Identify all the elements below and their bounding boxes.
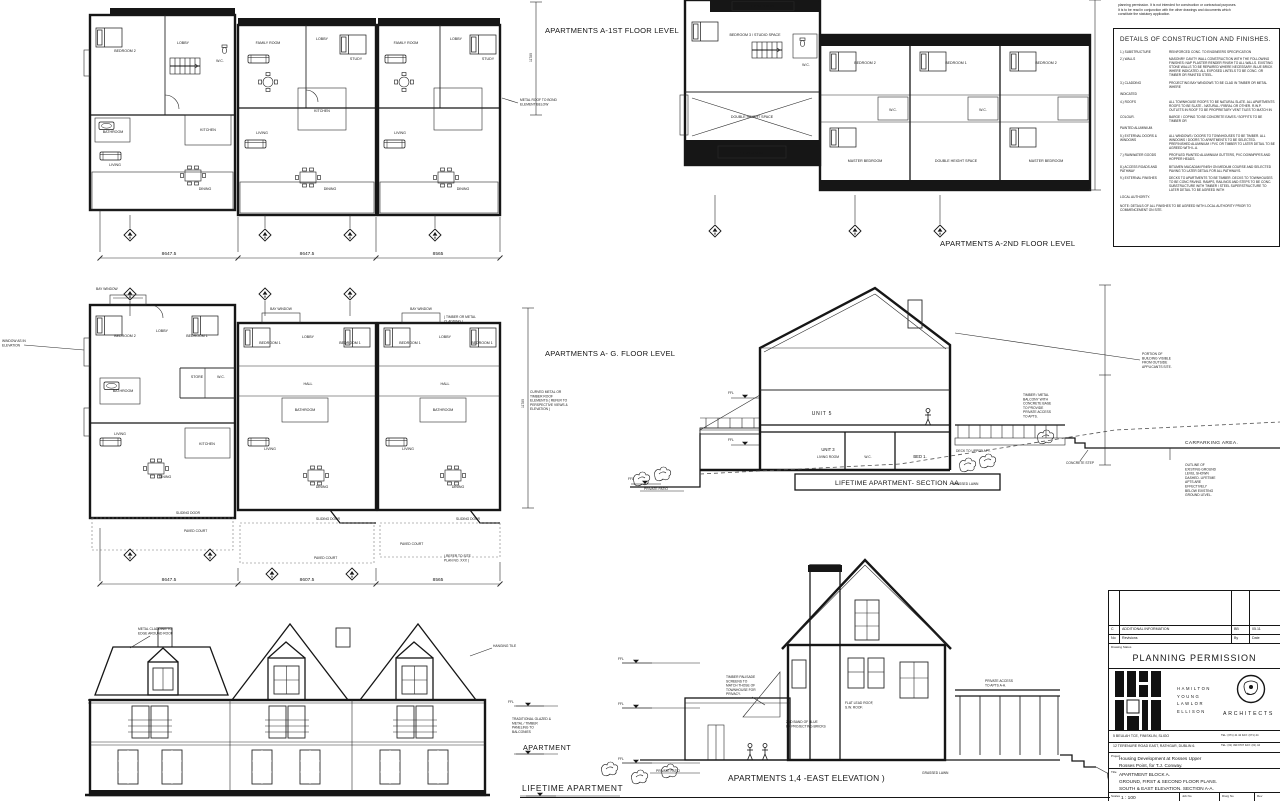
section-title: LIFETIME APARTMENT- SECTION AA <box>835 480 959 487</box>
room-label: DINING <box>159 475 172 479</box>
room-label: W.C. <box>979 108 987 112</box>
room-label: LOBBY <box>156 329 169 333</box>
svg-text:APPLICANTS SITE.: APPLICANTS SITE. <box>1142 365 1172 369</box>
svg-text:METAL ROOF TO BOND: METAL ROOF TO BOND <box>520 98 557 102</box>
vertical-dimension <box>1099 285 1111 465</box>
project-row: Project Housing Development at Rosses Up… <box>1109 753 1280 769</box>
balcony-doors <box>128 706 437 738</box>
svg-text:PAVED COURT: PAVED COURT <box>184 529 207 533</box>
room-label: KITCHEN <box>200 128 216 132</box>
room-label: KITCHEN <box>314 109 330 113</box>
finishes-item: 7.) RAINWATER GOODSPROFILED PAINTED ALUM… <box>1120 153 1275 161</box>
window-note: WINDOW AS IN ELEVATION <box>2 339 84 350</box>
address-1-tel: TEL: (071) 41 42 FAX: (071) 44 <box>1221 734 1259 737</box>
scale-row: Scales 1 : 100 Job No Drwg No Rev <box>1109 793 1280 801</box>
private-patio-label: PRIVATE PATIO <box>644 487 668 491</box>
svg-text:SLIDING DOOR: SLIDING DOOR <box>316 517 341 521</box>
room-label: W.C. <box>216 59 224 63</box>
dim-value: 11780 <box>521 399 525 408</box>
finishes-item: INDICATED <box>1120 92 1275 96</box>
svg-text:FFL: FFL <box>728 391 734 395</box>
svg-text:ELEVATION ): ELEVATION ) <box>530 407 550 411</box>
room-label: LOBBY <box>316 37 329 41</box>
room-label: HALL <box>441 382 450 386</box>
room-label: LIVING <box>256 131 268 135</box>
room-label: DINING <box>199 187 212 191</box>
svg-text:TO APTS.: TO APTS. <box>1023 415 1038 419</box>
room-label: LOBBY <box>439 335 452 339</box>
svg-text:BALCONIES: BALCONIES <box>512 730 532 734</box>
room-label: W.C. <box>217 375 225 379</box>
finishes-item: LOCAL AUTHORITY. <box>1120 195 1275 199</box>
room-label: W.C. <box>802 63 810 67</box>
plan-unit: PITCHED ROOF PITCHED ROOF BEDROOM 3 / ST… <box>680 0 820 165</box>
room-label: LIVING <box>402 447 414 451</box>
drawing-status-row: Drawing Status PLANNING PERMISSION <box>1109 644 1280 669</box>
cladding-note: CLADDING ) <box>444 320 463 324</box>
room-label: BEDROOM 1 <box>471 341 493 345</box>
room-label: FAMILY ROOM <box>256 41 281 45</box>
job-no-label: Job No <box>1182 794 1192 798</box>
bay-window-label: BAY WINDOW <box>96 287 119 291</box>
dim-value: 8647.5 <box>162 251 177 257</box>
firm-logo <box>1115 671 1163 731</box>
dormer <box>268 642 305 700</box>
address-2: 12 TERENURE ROAD EAST, RATHGAR, DUBLIN 6… <box>1113 744 1195 748</box>
east-elevation-title: APARTMENTS 1,4 -EAST ELEVATION ) <box>728 773 885 783</box>
unit5-label: UNIT 5 <box>812 411 833 417</box>
room-label: BATHROOM <box>113 389 134 393</box>
room-label: STUDY <box>482 57 495 61</box>
svg-text:EDGE AROUND ROOF: EDGE AROUND ROOF <box>138 631 173 635</box>
svg-text:SLIDING DOOR: SLIDING DOOR <box>456 517 481 521</box>
room-label: BEDROOM 1 <box>945 61 967 65</box>
room-label: HALL <box>304 382 313 386</box>
room-label: MASTER BEDROOM <box>848 159 883 163</box>
room-label: BATHROOM <box>103 130 124 134</box>
svg-text:PRIVACY.: PRIVACY. <box>726 692 741 696</box>
cladding-note: ( TIMBER OR METAL <box>444 315 476 319</box>
room-label: LIVING <box>109 163 121 167</box>
south-notes: METAL CLADDING TO EDGE AROUND ROOF HANGI… <box>130 627 623 796</box>
room-label: DOUBLE HEIGHT SPACE <box>731 115 774 119</box>
room-label: BATHROOM <box>433 408 454 412</box>
rev-label: Rev <box>1257 794 1262 798</box>
room-label: BEDROOM 2 <box>1035 61 1057 65</box>
room-label: DINING <box>452 485 465 489</box>
drwg-no-label: Drwg No <box>1222 794 1234 798</box>
room-label: LOBBY <box>177 41 190 45</box>
portion-note: PORTION OF BUILDING VISIBLE FROM OUTSIDE… <box>955 333 1172 369</box>
finishes-item: 4.) ROOFSALL TOWNHOUSE ROOFS TO BE NATUR… <box>1120 100 1275 112</box>
drawing-status-label: Drawing Status <box>1111 645 1131 649</box>
svg-text:HANGING TILE: HANGING TILE <box>493 644 517 648</box>
svg-text:ELEVATION: ELEVATION <box>2 344 21 348</box>
plan-unit: BEDROOM 2 BEDROOM 1 BEDROOM 2 W.C. W.C. … <box>820 35 1090 190</box>
svg-text:ELEMENT BELOW: ELEMENT BELOW <box>520 103 549 107</box>
paved-courts: SLIDING DOOR SLIDING DOOR SLIDING DOOR P… <box>92 510 500 563</box>
drawing-title-row: Title APARTMENT BLOCK A. GROUND, FIRST &… <box>1109 769 1280 793</box>
grid-marker-icons <box>124 215 441 241</box>
east-notes: TIMBER PALISADE SCREENS TO MATCH THOSE O… <box>726 675 1014 728</box>
section-building: UNIT 5 UNIT 3 LIVING ROOM W.C. BED 1. <box>700 288 950 470</box>
room-label: BEDROOM 2 <box>114 334 136 338</box>
svg-text:WINDOW AS IN: WINDOW AS IN <box>2 339 26 343</box>
room-label: W.C. <box>889 108 897 112</box>
dim-value: 8647.5 <box>300 251 315 257</box>
section-carpark: CARPARKING AREA. OUTLINE OF EXISTING GRO… <box>1095 440 1280 497</box>
room-label: PITCHED ROOF <box>751 5 776 9</box>
dim-value: 8607.5 <box>300 577 315 583</box>
svg-text:FFL: FFL <box>628 477 634 481</box>
lifetime-apartment-title: LIFETIME APARTMENT <box>522 783 623 793</box>
dimension-line: 8647.5 8647.5 8565 <box>98 210 503 261</box>
room-label: LOBBY <box>302 335 315 339</box>
room-label: MASTER BEDROOM <box>1029 159 1064 163</box>
apartment-label: APARTMENT <box>523 743 571 752</box>
section-ground-left: PRIVATE PATIO <box>630 395 760 491</box>
lower-windows <box>118 750 448 784</box>
logo-row: HAMILTON YOUNG LAWLOR ELLISON ARCHITECTS <box>1109 669 1280 731</box>
room-label: LIVING <box>114 432 126 436</box>
finishes-item: 9.) EXTERNAL FINISHESDECKS TO APARTMENTS… <box>1120 176 1275 192</box>
grassed-lawn-label: GRASSED LAWN <box>922 771 949 775</box>
carparking-label: CARPARKING AREA. <box>1185 440 1238 446</box>
svg-text:PAVED COURT: PAVED COURT <box>400 542 423 546</box>
refer-note: ( REFER TO SITE <box>444 554 472 558</box>
grid-marker-icons <box>709 195 946 237</box>
disclaimer-text: planning permission. It is not intended … <box>1118 3 1278 17</box>
room-label: BEDROOM 1 <box>186 334 208 338</box>
refer-note: PLAN NO. XXX ) <box>444 559 469 563</box>
room-label: LOBBY <box>450 37 463 41</box>
room-label: DOUBLE HEIGHT SPACE <box>935 159 978 163</box>
finishes-item: 5.) EXTERNAL DOORS & WINDOWSALL WINDOWS … <box>1120 134 1275 150</box>
room-label: PITCHED ROOF <box>740 151 765 155</box>
finishes-title: DETAILS OF CONSTRUCTION AND FINISHES. <box>1120 36 1275 43</box>
svg-text:SLIDING DOOR: SLIDING DOOR <box>176 511 201 515</box>
bed1-label: BED 1. <box>913 454 926 459</box>
drawing-title-label: Title <box>1111 770 1117 774</box>
plan-unit: BEDROOM 2 LOBBY W.C. BATHROOM KITCHEN LI… <box>84 8 235 210</box>
first-floor-title: APARTMENTS A-1ST FLOOR LEVEL <box>545 26 679 35</box>
revision-header-row: No Revisions By Date <box>1109 635 1280 644</box>
svg-text:PAVED COURT: PAVED COURT <box>314 556 337 560</box>
dormer <box>148 648 178 695</box>
living-room-label: LIVING ROOM <box>817 455 839 459</box>
room-label: KITCHEN <box>199 442 215 446</box>
scales-label: Scales <box>1111 794 1120 798</box>
finishes-item: 2.) WALLSMASONRY CAVITY WALL CONSTRUCTIO… <box>1120 57 1275 77</box>
finishes-item: COLOUR.BARGE / COPING TO BE CONCRETE EAV… <box>1120 115 1275 123</box>
drawing-sheet: BEDROOM 2 LOBBY W.C. BATHROOM KITCHEN LI… <box>0 0 1280 801</box>
plan-unit: BAY WINDOW BEDROOM 1 LOBBY BEDROOM 1 HAL… <box>238 307 376 510</box>
room-label: BEDROOM 1 <box>259 341 281 345</box>
plan-unit: FAMILY ROOM LOBBY STUDY LIVING DINING <box>378 18 500 215</box>
dim-value: 8647.5 <box>162 577 177 583</box>
finishes-item: 1.) SUBSTRUCTUREREINFORCED CONC. TO ENGI… <box>1120 50 1275 54</box>
room-label: FAMILY ROOM <box>394 41 419 45</box>
room-label: LIVING <box>394 131 406 135</box>
room-label: DINING <box>457 187 470 191</box>
svg-text:FFL: FFL <box>508 700 514 704</box>
unit3-label: UNIT 3 <box>821 447 835 452</box>
finishes-footnote: NOTE: DETAILS OF ALL FINISHES TO BE AGRE… <box>1120 204 1275 212</box>
grid-marker-icons <box>124 288 356 316</box>
architects-crest-icon <box>1235 673 1267 705</box>
balcony-note: TIMBER / METAL BALCONY WITH CONCRETE BAS… <box>1023 393 1052 419</box>
finishes-item: 8.) ACCESS ROADS AND PATHWAYBITUMEN MACA… <box>1120 165 1275 173</box>
elevation-body <box>85 700 490 795</box>
room-label: BEDROOM 3 / STUDIO SPACE <box>729 33 781 37</box>
room-label: BEDROOM 2 <box>114 49 136 53</box>
bay-window-label: BAY WINDOW <box>410 307 433 311</box>
elevation-roofs <box>88 624 484 703</box>
south-elevation: METAL CLADDING TO EDGE AROUND ROOF HANGI… <box>0 600 680 801</box>
svg-text:GROUND LEVEL.: GROUND LEVEL. <box>1185 493 1212 497</box>
svg-text:TO APTS A-A.: TO APTS A-A. <box>985 683 1006 687</box>
plan-unit: FAMILY ROOM LOBBY STUDY KITCHEN LIVING D… <box>238 18 376 215</box>
room-label: BATHROOM <box>295 408 316 412</box>
finishes-item: PAINTED ALUMINIUM. <box>1120 126 1275 130</box>
room-label: DINING <box>324 187 337 191</box>
sheet-border-bottom <box>520 797 1110 798</box>
revision-blank-row <box>1109 591 1280 626</box>
address-2-tel: TEL: (01) 490 9707 FAX: (01) 44 <box>1221 744 1260 747</box>
revision-row: C ADDITIONAL INFORMATION BB 05.11 <box>1109 626 1280 635</box>
section-aa: PRIVATE PATIO UNIT 5 UNIT 3 LIVING ROOM … <box>560 278 1280 523</box>
dim-value: 11780 <box>529 53 533 62</box>
elevation-building <box>640 560 1060 760</box>
room-label: DINING <box>316 485 329 489</box>
bay-window-label: BAY WINDOW <box>270 307 293 311</box>
metal-roof-note: METAL ROOF TO BOND ELEMENT BELOW <box>502 98 557 107</box>
room-label: LIVING <box>264 447 276 451</box>
dim-value: 8565 <box>433 251 444 257</box>
scale-value: 1 : 100 <box>1121 796 1136 801</box>
wc-label: W.C. <box>864 455 871 459</box>
second-floor-title: APARTMENTS A-2ND FLOOR LEVEL <box>940 239 1075 248</box>
drawing-status-value: PLANNING PERMISSION <box>1109 653 1280 663</box>
room-label: BEDROOM 1 <box>399 341 421 345</box>
architects-label: ARCHITECTS <box>1223 711 1274 717</box>
plan-unit: BAY WINDOW BEDROOM 2 LOBBY STORE W.C. BA… <box>84 287 235 518</box>
svg-text:BK PROJECTING BRICKS: BK PROJECTING BRICKS <box>786 724 827 728</box>
address-row: 5 BEULAH TCE, FINISKLIN, SLIGO TEL: (071… <box>1109 731 1280 753</box>
firm-name: HAMILTON YOUNG LAWLOR ELLISON <box>1177 685 1211 715</box>
room-label: BEDROOM 2 <box>854 61 876 65</box>
address-1: 5 BEULAH TCE, FINISKLIN, SLIGO <box>1113 734 1169 738</box>
finishes-item: 3.) CLADDINGPROJECTING BAY WINDOWS TO BE… <box>1120 81 1275 89</box>
concrete-step-note: CONCRETE STEP <box>1066 461 1095 465</box>
finishes-notes-block: DETAILS OF CONSTRUCTION AND FINISHES. 1.… <box>1113 28 1280 247</box>
room-label: BEDROOM 1 <box>339 341 361 345</box>
svg-text:FFL: FFL <box>728 438 734 442</box>
room-label: STORE <box>191 375 204 379</box>
title-block: C ADDITIONAL INFORMATION BB 05.11 No Rev… <box>1108 590 1280 801</box>
room-label: STUDY <box>350 57 363 61</box>
plan-unit: BAY WINDOW ( TIMBER OR METAL CLADDING ) … <box>378 307 500 510</box>
svg-text:S.W. ROOF.: S.W. ROOF. <box>845 705 863 709</box>
first-floor-plan: BEDROOM 2 LOBBY W.C. BATHROOM KITCHEN LI… <box>0 0 680 278</box>
dormer <box>396 642 433 700</box>
grid-marker-icons <box>124 549 358 580</box>
dim-value: 8565 <box>433 577 444 583</box>
